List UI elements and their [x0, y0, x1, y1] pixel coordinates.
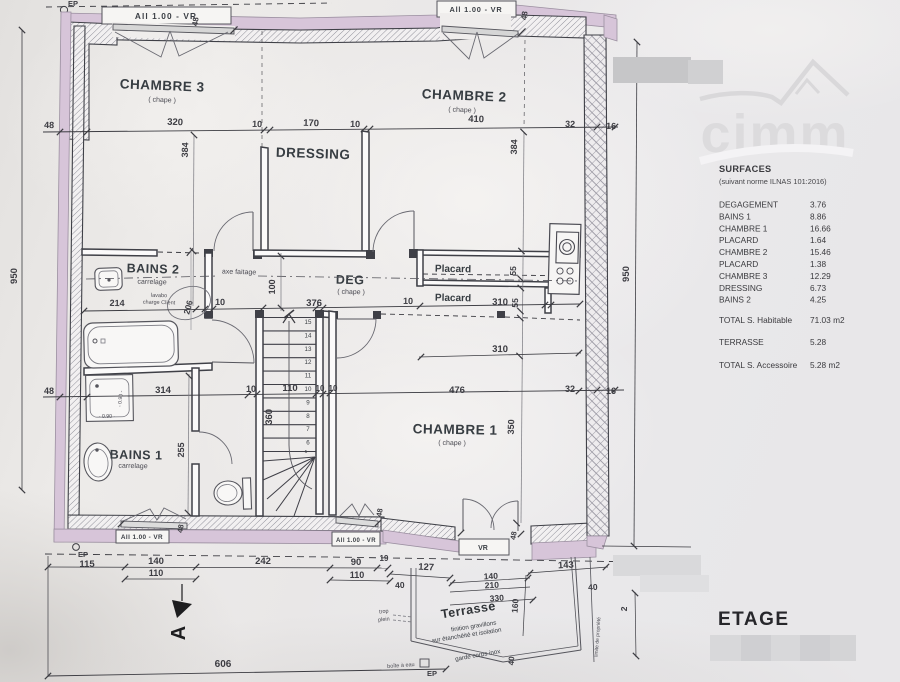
svg-text:ETAGE: ETAGE	[718, 609, 790, 630]
svg-text:12: 12	[305, 359, 312, 366]
svg-text:1.38: 1.38	[810, 259, 827, 269]
svg-text:axe faitage: axe faitage	[222, 269, 257, 277]
svg-text:32: 32	[565, 119, 575, 129]
svg-text:360: 360	[264, 409, 275, 425]
svg-text:carrelage: carrelage	[137, 279, 166, 287]
svg-text:All 1.00 - VR: All 1.00 - VR	[336, 538, 376, 544]
svg-text:BAINS 2: BAINS 2	[127, 261, 180, 276]
svg-text:100: 100	[267, 279, 277, 294]
svg-text:10: 10	[329, 384, 338, 393]
svg-text:DRESSING: DRESSING	[276, 145, 351, 163]
svg-text:48: 48	[374, 508, 384, 518]
svg-text:carrelage: carrelage	[118, 463, 147, 471]
svg-text:55: 55	[508, 266, 518, 276]
svg-text:48: 48	[508, 531, 518, 541]
svg-text:310: 310	[492, 344, 508, 355]
svg-text:48: 48	[190, 16, 200, 27]
svg-text:Placard: Placard	[435, 264, 471, 276]
svg-text:40: 40	[588, 582, 598, 592]
svg-text:1.64: 1.64	[810, 235, 827, 245]
svg-text:TOTAL S. Accessoire: TOTAL S. Accessoire	[719, 360, 798, 370]
svg-text:48: 48	[519, 10, 529, 21]
svg-text:TERRASSE: TERRASSE	[719, 337, 764, 347]
svg-text:310: 310	[492, 297, 508, 308]
svg-text:CHAMBRE 2: CHAMBRE 2	[719, 247, 768, 257]
svg-text:( chape ): ( chape )	[148, 96, 176, 104]
svg-text:16.66: 16.66	[810, 223, 831, 233]
svg-text:TOTAL S. Habitable: TOTAL S. Habitable	[719, 315, 793, 325]
svg-text:5: 5	[305, 449, 308, 455]
svg-text:plein: plein	[378, 616, 390, 623]
svg-text:10: 10	[403, 296, 413, 306]
svg-text:160: 160	[510, 598, 521, 613]
svg-text:320: 320	[167, 117, 183, 129]
svg-text:lavabo: lavabo	[151, 293, 167, 299]
svg-text:8: 8	[306, 413, 310, 420]
svg-text:127: 127	[418, 562, 434, 574]
svg-text:15: 15	[305, 319, 312, 326]
svg-text:Placard: Placard	[435, 293, 471, 305]
svg-text:314: 314	[155, 385, 172, 396]
svg-text:EP: EP	[68, 0, 78, 8]
svg-text:(suivant norme ILNAS 101:2016): (suivant norme ILNAS 101:2016)	[719, 177, 827, 186]
svg-text:CHAMBRE 1: CHAMBRE 1	[719, 223, 768, 233]
svg-text:( chape ): ( chape )	[438, 440, 466, 447]
svg-text:32: 32	[565, 384, 575, 394]
svg-text:110: 110	[282, 383, 297, 394]
svg-text:384: 384	[509, 139, 520, 154]
svg-text:15.46: 15.46	[810, 247, 831, 257]
svg-text:242: 242	[255, 556, 271, 567]
svg-text:606: 606	[215, 659, 232, 670]
svg-text:10: 10	[350, 119, 360, 129]
svg-text:115: 115	[79, 559, 95, 570]
svg-text:5.28 m2: 5.28 m2	[810, 360, 840, 370]
svg-text:13: 13	[305, 346, 312, 353]
svg-text:BAINS 1: BAINS 1	[110, 448, 163, 463]
svg-text:110: 110	[149, 568, 164, 578]
svg-text:EP: EP	[427, 669, 437, 678]
svg-text:16: 16	[606, 121, 616, 131]
svg-text:110: 110	[350, 570, 365, 580]
svg-text:10: 10	[246, 384, 256, 394]
svg-text:90: 90	[351, 557, 362, 568]
svg-text:PLACARD: PLACARD	[719, 259, 758, 269]
svg-text:255: 255	[176, 442, 186, 457]
svg-text:11: 11	[305, 373, 312, 380]
svg-text:350: 350	[506, 419, 517, 434]
svg-text:140: 140	[148, 556, 164, 567]
svg-text:3.76: 3.76	[810, 200, 827, 210]
svg-text:SURFACES: SURFACES	[719, 164, 771, 174]
svg-text:10: 10	[252, 119, 262, 129]
svg-text:All 1.00 - VR: All 1.00 - VR	[121, 534, 163, 541]
svg-text:BAINS 2: BAINS 2	[719, 295, 751, 305]
svg-text:48: 48	[44, 386, 54, 396]
svg-text:4.25: 4.25	[810, 295, 827, 305]
svg-text:55: 55	[510, 298, 520, 308]
svg-text:trop: trop	[379, 609, 389, 616]
svg-text:410: 410	[468, 114, 484, 126]
svg-text:6.73: 6.73	[810, 283, 827, 293]
svg-text:2: 2	[619, 606, 629, 611]
svg-text:BAINS 1: BAINS 1	[719, 211, 751, 221]
svg-text:950: 950	[9, 268, 20, 284]
svg-text:- 0.90 -: - 0.90 -	[99, 414, 116, 420]
svg-text:10: 10	[305, 386, 312, 393]
svg-text:48: 48	[175, 524, 185, 534]
svg-text:210: 210	[484, 580, 499, 591]
svg-text:All 1.00 - VR: All 1.00 - VR	[135, 11, 197, 21]
svg-text:DRESSING: DRESSING	[719, 283, 762, 293]
svg-text:EP: EP	[78, 550, 88, 559]
svg-text:6: 6	[306, 440, 310, 447]
svg-text:CHAMBRE 1: CHAMBRE 1	[413, 421, 498, 437]
svg-text:12.29: 12.29	[810, 271, 831, 281]
svg-text:214: 214	[109, 298, 124, 308]
svg-text:950: 950	[621, 266, 632, 282]
svg-text:4: 4	[311, 457, 314, 463]
svg-text:384: 384	[180, 142, 191, 157]
svg-text:10: 10	[215, 297, 225, 307]
svg-text:476: 476	[449, 385, 465, 396]
svg-text:5.28: 5.28	[810, 337, 827, 347]
svg-text:CHAMBRE 3: CHAMBRE 3	[719, 271, 768, 281]
svg-text:48: 48	[44, 120, 54, 130]
svg-text:16: 16	[606, 386, 616, 396]
svg-text:All 1.00 - VR: All 1.00 - VR	[449, 5, 502, 14]
svg-text:9: 9	[306, 399, 310, 406]
svg-text:( chape ): ( chape )	[337, 289, 365, 297]
svg-text:376: 376	[306, 298, 322, 309]
svg-text:14: 14	[305, 332, 312, 339]
svg-text:10: 10	[316, 384, 325, 393]
svg-text:19: 19	[380, 554, 389, 563]
svg-text:charge Client: charge Client	[143, 300, 176, 307]
svg-text:8.86: 8.86	[810, 211, 827, 221]
svg-text:71.03 m2: 71.03 m2	[810, 315, 845, 325]
svg-text:7: 7	[306, 426, 310, 433]
svg-text:PLACARD: PLACARD	[719, 235, 758, 245]
svg-text:DEGAGEMENT: DEGAGEMENT	[719, 200, 778, 210]
svg-text:DEG: DEG	[336, 273, 365, 288]
svg-text:40: 40	[395, 580, 405, 590]
svg-text:170: 170	[303, 118, 319, 130]
svg-text:VR: VR	[478, 545, 488, 552]
svg-text:A: A	[168, 626, 190, 640]
